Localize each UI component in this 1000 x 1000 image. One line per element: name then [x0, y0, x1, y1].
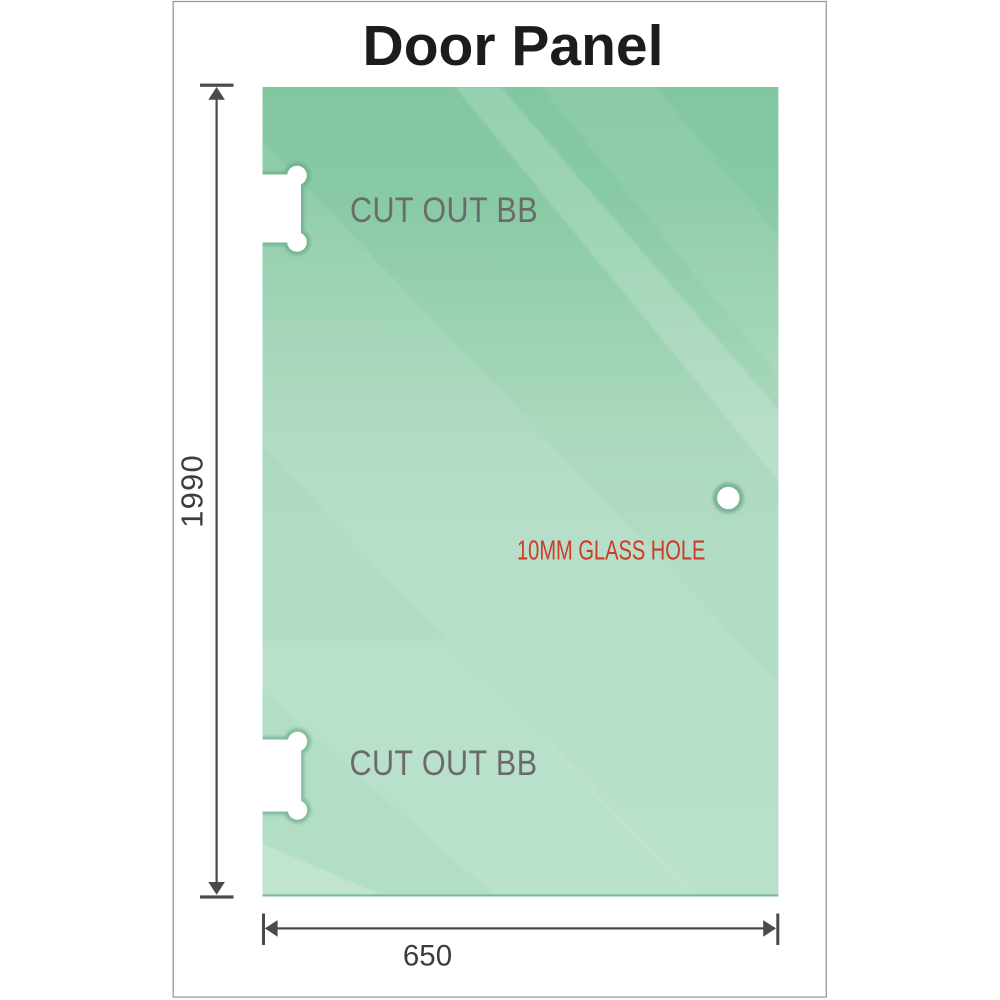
svg-text:CUT OUT BB: CUT OUT BB — [350, 744, 538, 784]
svg-text:1990: 1990 — [174, 454, 209, 528]
svg-text:10MM GLASS HOLE: 10MM GLASS HOLE — [517, 536, 705, 567]
svg-text:CUT OUT BB: CUT OUT BB — [350, 191, 538, 231]
svg-text:Door Panel: Door Panel — [363, 14, 664, 78]
svg-text:650: 650 — [403, 939, 452, 972]
